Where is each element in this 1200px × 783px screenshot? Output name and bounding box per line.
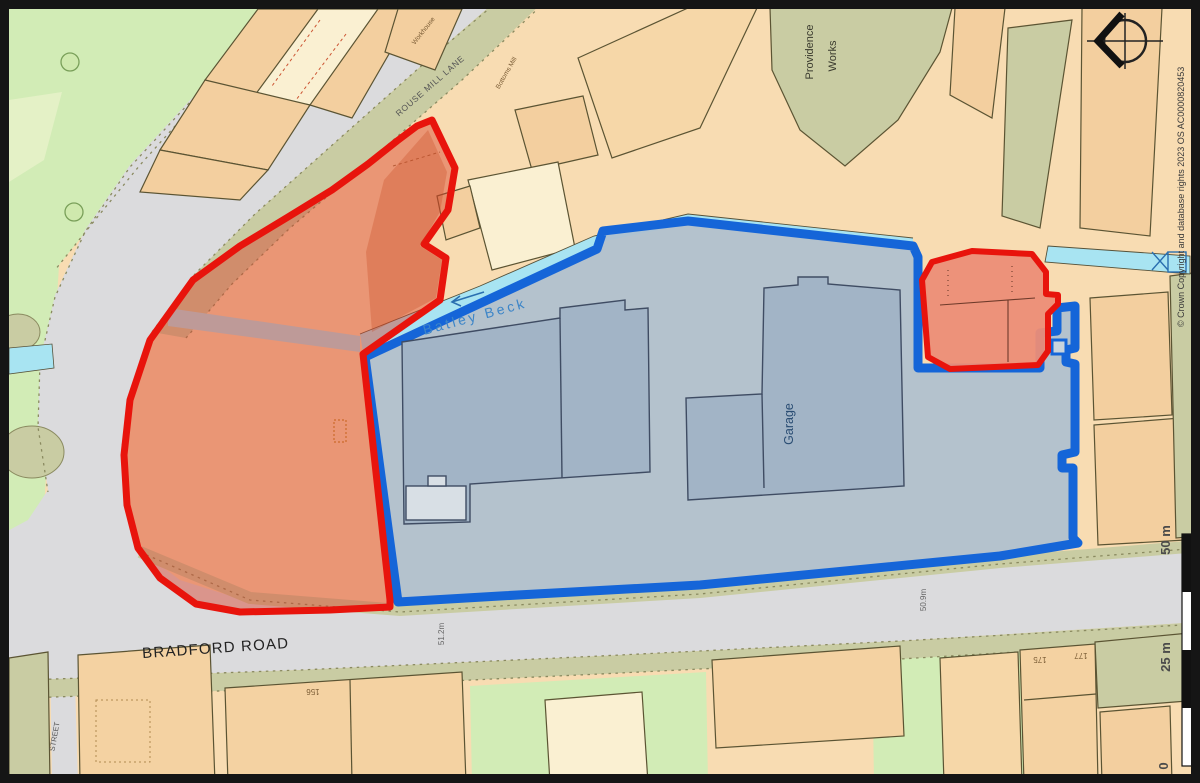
building-footprint xyxy=(1020,644,1098,783)
red-site-polygon-east xyxy=(922,251,1058,369)
tree-icon xyxy=(65,203,83,221)
providence-works-label: Works xyxy=(827,40,839,71)
site-structure xyxy=(428,476,446,486)
building-footprint xyxy=(712,646,904,748)
small-annotated-structure xyxy=(1052,340,1066,354)
building-footprint xyxy=(9,652,50,783)
house-number-label: 156 xyxy=(306,687,320,696)
house-number-label: 177 xyxy=(1074,651,1088,660)
building-footprint xyxy=(1090,292,1172,420)
traffic-island xyxy=(0,426,64,478)
scale-label-50m: 50 m xyxy=(1158,525,1173,555)
building-footprint xyxy=(1080,8,1162,236)
scale-label-25m: 25 m xyxy=(1158,642,1173,672)
map-canvas: ROUSE MILL LANE BRADFORD ROAD STREET Pro… xyxy=(0,0,1200,783)
scale-label-0: 0 xyxy=(1156,762,1171,769)
building-footprint xyxy=(225,672,466,783)
building-footprint xyxy=(940,652,1022,783)
site-yard xyxy=(406,486,466,520)
spot-height-label: 50.9m xyxy=(919,589,928,612)
spot-height-label: 51.2m xyxy=(437,623,446,646)
copyright-text: © Crown Copyright and database rights 20… xyxy=(1176,67,1186,327)
building-footprint xyxy=(1100,706,1172,783)
providence-works-label: Providence xyxy=(804,24,816,79)
garage-label: Garage xyxy=(782,403,796,445)
house-number-label: 175 xyxy=(1033,655,1047,664)
site-location-plan: ROUSE MILL LANE BRADFORD ROAD STREET Pro… xyxy=(0,0,1200,783)
tree-icon xyxy=(61,53,79,71)
road-surface-street xyxy=(50,648,78,783)
building-footprint xyxy=(545,692,648,783)
building-footprint xyxy=(78,645,215,783)
